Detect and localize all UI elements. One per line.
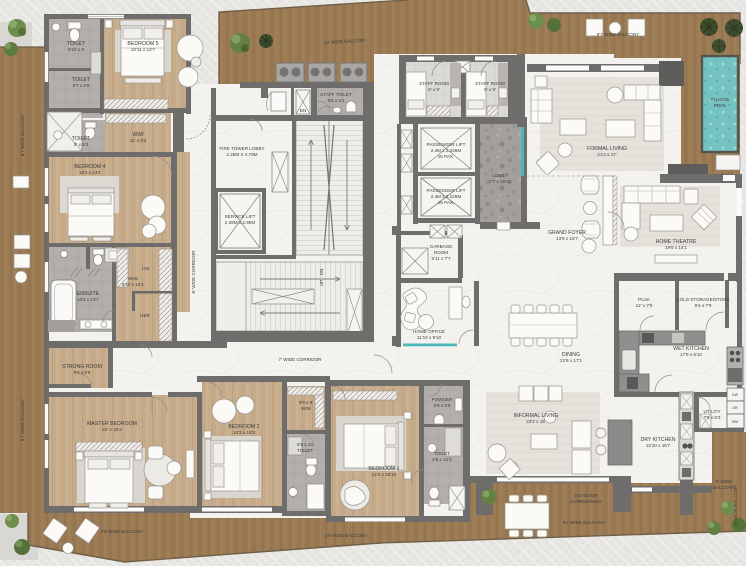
svg-text:10'11 x 12'7: 10'11 x 12'7: [131, 47, 156, 52]
svg-text:9' x 9': 9' x 9': [484, 87, 496, 92]
svg-text:WIW: WIW: [301, 406, 312, 411]
svg-text:12' x 7'9: 12' x 7'9: [636, 303, 653, 308]
svg-text:6'9 x 12'3: 6'9 x 12'3: [432, 457, 452, 462]
svg-text:DN: DN: [319, 269, 324, 276]
svg-text:23'2 x 15': 23'2 x 15': [526, 419, 546, 424]
svg-text:15 PAX.: 15 PAX.: [438, 200, 455, 205]
svg-text:9'4 x 7'9: 9'4 x 7'9: [695, 303, 712, 308]
svg-text:ROOM: ROOM: [434, 250, 448, 255]
svg-text:OUTDOOR: OUTDOOR: [574, 493, 598, 498]
svg-text:6'7 x 5'5: 6'7 x 5'5: [73, 83, 90, 88]
svg-text:PLUNGE: PLUNGE: [711, 97, 730, 102]
svg-text:HIS: HIS: [142, 266, 150, 271]
svg-text:TOILET: TOILET: [297, 448, 313, 453]
svg-text:POOL: POOL: [714, 103, 727, 108]
svg-text:13'9 x 15'7: 13'9 x 15'7: [556, 236, 578, 241]
svg-text:DW: DW: [732, 393, 739, 397]
svg-text:5'11 x 7'7: 5'11 x 7'7: [431, 256, 450, 261]
svg-text:PUJA: PUJA: [638, 297, 651, 302]
svg-text:8'10 x 8: 8'10 x 8: [68, 47, 84, 52]
svg-text:11'10 x 9'10: 11'10 x 9'10: [417, 335, 442, 340]
svg-text:PASSENGER LIFT: PASSENGER LIFT: [427, 188, 466, 193]
svg-text:LOBBY: LOBBY: [492, 173, 507, 178]
svg-text:2.4M x 2.225M: 2.4M x 2.225M: [431, 148, 462, 153]
svg-text:21'8 x 17'1: 21'8 x 17'1: [560, 358, 582, 363]
svg-text:STAFF ROOM: STAFF ROOM: [475, 81, 505, 86]
svg-text:FIRE TOWER LOBBY: FIRE TOWER LOBBY: [219, 146, 264, 151]
svg-text:16'1 x 14'1: 16'1 x 14'1: [79, 170, 101, 175]
svg-text:7'7 x 15'11: 7'7 x 15'11: [489, 179, 511, 184]
svg-text:HOME OFFICE: HOME OFFICE: [413, 329, 445, 334]
svg-text:GARBAGE: GARBAGE: [430, 244, 453, 249]
svg-text:2.29M x 2.95M: 2.29M x 2.95M: [225, 220, 256, 225]
svg-text:SERVICE LIFT: SERVICE LIFT: [225, 214, 256, 219]
svg-text:COLD STORAGE/STORE: COLD STORAGE/STORE: [676, 297, 729, 302]
svg-text:14'3 x 18'3: 14'3 x 18'3: [233, 430, 255, 435]
svg-text:8'7 WIDE BALCONY: 8'7 WIDE BALCONY: [597, 32, 640, 37]
svg-text:8' WIDE BALCONY: 8' WIDE BALCONY: [733, 485, 738, 525]
svg-text:WIW: WIW: [128, 276, 139, 281]
svg-text:2.4M x 2.225M: 2.4M x 2.225M: [431, 194, 462, 199]
svg-text:2.25M X 4.79M: 2.25M X 4.79M: [226, 152, 257, 157]
svg-text:WM: WM: [732, 420, 738, 424]
svg-text:POWDER: POWDER: [432, 397, 453, 402]
svg-text:7' WIDE CORRIDOR: 7' WIDE CORRIDOR: [279, 357, 323, 362]
svg-text:15 PAX.: 15 PAX.: [438, 154, 455, 159]
svg-text:TOILET: TOILET: [434, 451, 450, 456]
svg-text:9' x 9': 9' x 9': [428, 87, 440, 92]
svg-text:8'7 WIDE BALCONY: 8'7 WIDE BALCONY: [20, 399, 25, 442]
svg-text:6' WIDE: 6' WIDE: [716, 479, 733, 484]
svg-text:9'8 x 6'6: 9'8 x 6'6: [74, 370, 91, 375]
svg-text:UTILITY: UTILITY: [703, 409, 720, 414]
svg-text:8'10 x 14'1: 8'10 x 14'1: [122, 282, 144, 287]
svg-text:DN: DN: [300, 108, 307, 113]
svg-text:17'9 x 8'10: 17'9 x 8'10: [680, 352, 702, 357]
svg-text:14'3 x 18'10: 14'3 x 18'10: [372, 472, 397, 477]
svg-text:19'8 x 14'1: 19'8 x 14'1: [665, 245, 687, 250]
svg-text:4'9 WIDE BALCONY: 4'9 WIDE BALCONY: [325, 533, 368, 538]
svg-text:BALCONY: BALCONY: [713, 485, 735, 490]
svg-text:UP: UP: [319, 280, 324, 286]
svg-text:7'5 x 6'3: 7'5 x 6'3: [704, 415, 721, 420]
svg-text:HER: HER: [140, 313, 150, 318]
svg-text:8'7 WIDE BALCONY: 8'7 WIDE BALCONY: [20, 114, 25, 157]
svg-text:11' x 6'3: 11' x 6'3: [130, 138, 147, 143]
svg-text:6'9 x 5'9: 6'9 x 5'9: [434, 403, 451, 408]
svg-text:PASSENGER LIFT: PASSENGER LIFT: [427, 142, 466, 147]
svg-text:6' WIDE CORRIDOR: 6' WIDE CORRIDOR: [191, 250, 196, 294]
svg-text:DR: DR: [732, 406, 738, 410]
svg-text:6'9 x 13: 6'9 x 13: [297, 442, 313, 447]
svg-text:8'1 WIDE BALCONY: 8'1 WIDE BALCONY: [563, 520, 606, 525]
svg-text:5'9 x 4'1: 5'9 x 4'1: [328, 98, 345, 103]
svg-text:6'9 x 8': 6'9 x 8': [299, 400, 313, 405]
svg-text:12'10 x 15'7: 12'10 x 15'7: [646, 443, 671, 448]
svg-text:9' x 6'3: 9' x 6'3: [74, 142, 89, 147]
svg-text:10'4 x 13'7: 10'4 x 13'7: [77, 297, 99, 302]
svg-text:STAFF TOILET: STAFF TOILET: [320, 92, 352, 97]
svg-text:STAFF ROOM: STAFF ROOM: [419, 81, 449, 86]
svg-text:7'5 WIDE BALCONY: 7'5 WIDE BALCONY: [101, 529, 144, 534]
svg-text:21'4 x 17': 21'4 x 17': [597, 152, 617, 157]
svg-text:LIVING/DINING: LIVING/DINING: [570, 499, 603, 504]
svg-text:22' x 18'3: 22' x 18'3: [102, 427, 122, 432]
